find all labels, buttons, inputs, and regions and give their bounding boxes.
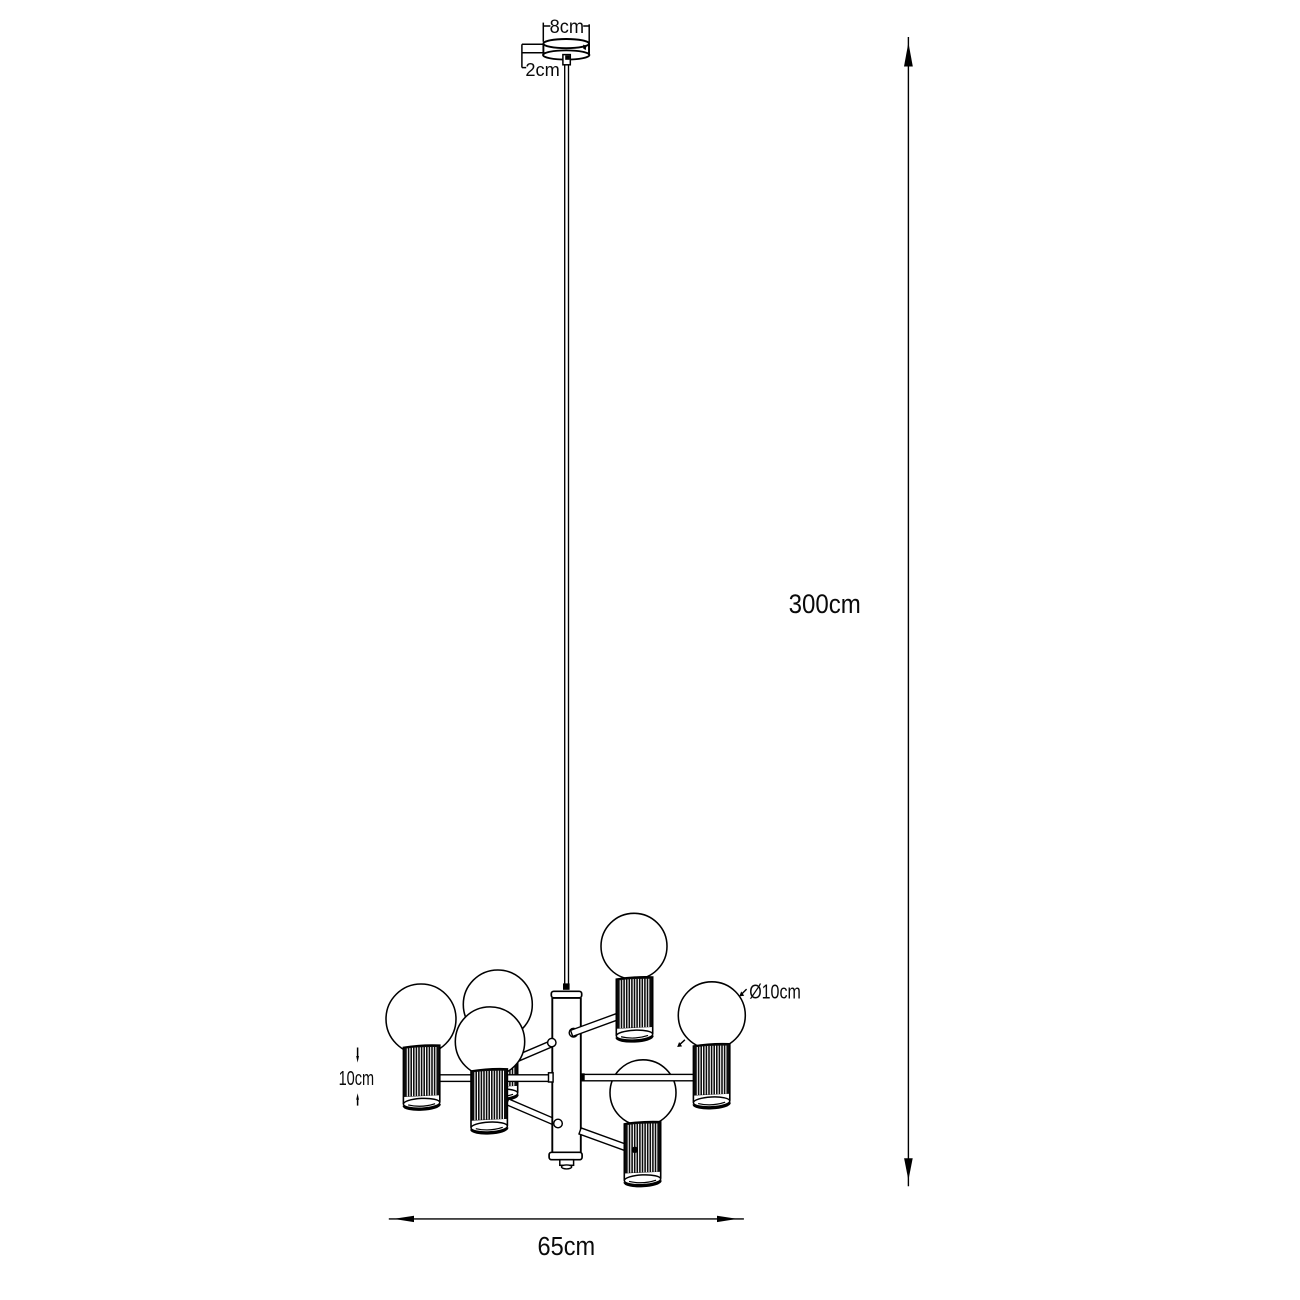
svg-text:8cm: 8cm	[550, 16, 584, 38]
svg-text:300cm: 300cm	[789, 589, 861, 619]
svg-text:Ø10cm: Ø10cm	[749, 981, 801, 1003]
svg-text:65cm: 65cm	[538, 1233, 596, 1261]
svg-text:10cm: 10cm	[339, 1068, 375, 1090]
svg-text:2cm: 2cm	[525, 60, 559, 80]
